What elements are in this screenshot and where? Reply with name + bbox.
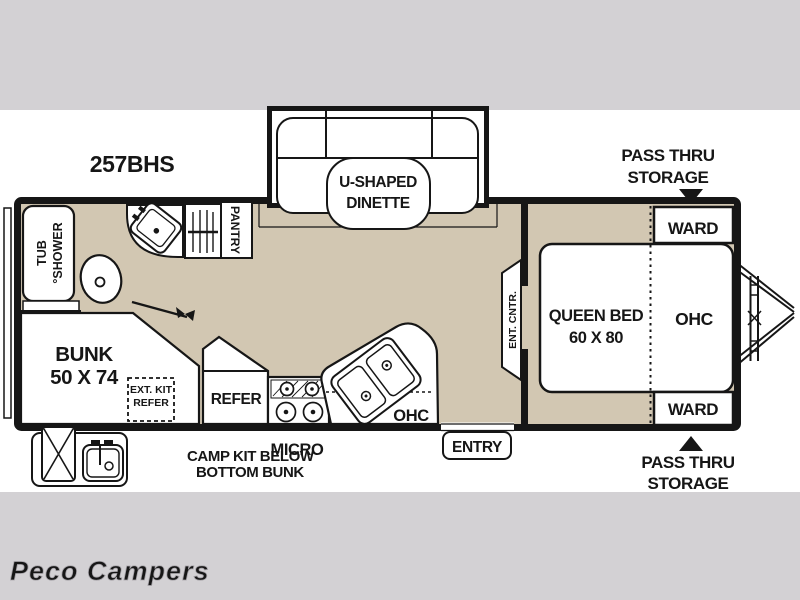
dinette-slideout: U-SHAPED DINETTE	[270, 109, 487, 230]
bedroom-ohc-label: OHC	[675, 309, 713, 329]
dinette-label-line2: DINETTE	[346, 195, 410, 212]
pass-thru-bottom-line2: STORAGE	[648, 474, 729, 493]
pantry-label: PANTRY	[228, 206, 242, 254]
floorplan-svg: 257BHS U-SHAPED DINETTE ENT. CNTR. QUEEN…	[0, 0, 800, 600]
bunk-label-line1: BUNK	[55, 343, 113, 366]
camp-kit-label-line2: BOTTOM BUNK	[196, 464, 304, 481]
model-title: 257BHS	[90, 151, 175, 177]
bedroom-wall-bottom-segment	[521, 349, 528, 425]
entry-door: ENTRY	[441, 423, 514, 460]
wardrobe-bottom-label: WARD	[668, 400, 718, 419]
refer-label: REFER	[211, 391, 262, 408]
dealer-watermark: Peco Campers	[10, 556, 210, 586]
floorplan-page: 257BHS U-SHAPED DINETTE ENT. CNTR. QUEEN…	[0, 0, 800, 600]
pass-thru-top-line2: STORAGE	[628, 168, 709, 187]
ext-kit-label-line1: EXT. KIT	[130, 384, 173, 396]
tub-shower-label-line2: °SHOWER	[51, 222, 65, 283]
queen-bed-label-line1: QUEEN BED	[549, 307, 644, 325]
rear-bumper	[4, 208, 11, 418]
hanging-closet	[185, 204, 221, 258]
camp-kit-stand-icon	[42, 427, 75, 481]
top-gray-band	[0, 0, 800, 110]
entertainment-center-label: ENT. CNTR.	[507, 291, 519, 349]
dinette-label-line1: U-SHAPED	[339, 174, 417, 191]
pass-thru-top-line1: PASS THRU	[621, 146, 714, 165]
bedroom-wall-top-segment	[521, 204, 528, 286]
entry-label: ENTRY	[452, 439, 503, 456]
ext-kit-label-line2: REFER	[133, 397, 169, 409]
wardrobe-top-label: WARD	[668, 219, 718, 238]
dinette-label-bubble	[327, 158, 430, 229]
tub-shower-label-line1: TUB	[35, 240, 49, 266]
camp-kit-sink-icon	[83, 440, 123, 481]
bunk-label-line2: 50 X 74	[50, 366, 119, 389]
queen-bed-label-line2: 60 X 80	[569, 329, 623, 347]
kitchen-ohc-label: OHC	[393, 407, 429, 425]
pass-thru-bottom-line1: PASS THRU	[641, 453, 734, 472]
toilet-flush-icon	[96, 278, 105, 287]
stove-icon	[268, 377, 329, 424]
camp-kit-label-line1: CAMP KIT BELOW	[187, 448, 315, 465]
